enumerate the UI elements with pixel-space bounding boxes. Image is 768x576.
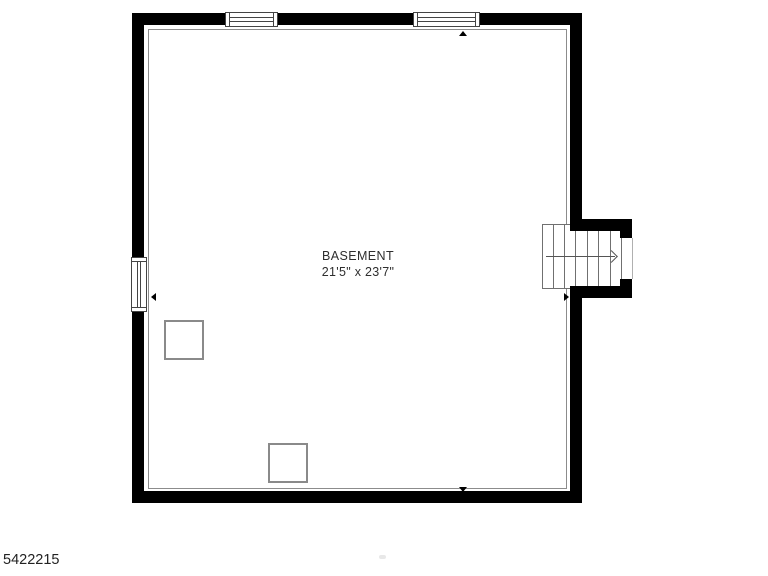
wall-marker-up-icon [459,31,467,36]
window-frame-line [132,307,146,308]
stair-arrow-head-icon [605,250,618,263]
window-frame-line [475,13,476,26]
window-frame-line [229,21,274,22]
listing-id: 5422215 [3,552,59,568]
stair-alcove-edge-line [632,238,633,279]
room-name: BASEMENT [258,248,458,264]
window-frame-line [229,17,274,18]
staircase [542,224,622,289]
floor-plan-canvas: BASEMENT 21'5" x 23'7" 5422215 [0,0,768,576]
faint-dot [379,555,386,559]
window-frame-line [132,261,146,262]
wall-marker-left-icon [151,293,156,301]
window-frame-line [417,17,476,18]
window-top-left [225,12,278,27]
window-frame-line [417,13,418,26]
window-left-wall [131,257,147,312]
room-label-block: BASEMENT 21'5" x 23'7" [258,248,458,280]
window-frame-line [137,261,138,308]
support-post [164,320,204,360]
window-frame-line [273,13,274,26]
window-frame-line [229,13,230,26]
wall-marker-down-icon [459,487,467,492]
support-post [268,443,308,483]
window-top-right [413,12,480,27]
wall-marker-right-icon [564,293,569,301]
room-dimensions: 21'5" x 23'7" [258,264,458,280]
stair-alcove-wall-cap-bottom [620,279,632,298]
stair-alcove-wall-cap-top [620,219,632,238]
window-frame-line [417,21,476,22]
window-frame-line [140,261,141,308]
